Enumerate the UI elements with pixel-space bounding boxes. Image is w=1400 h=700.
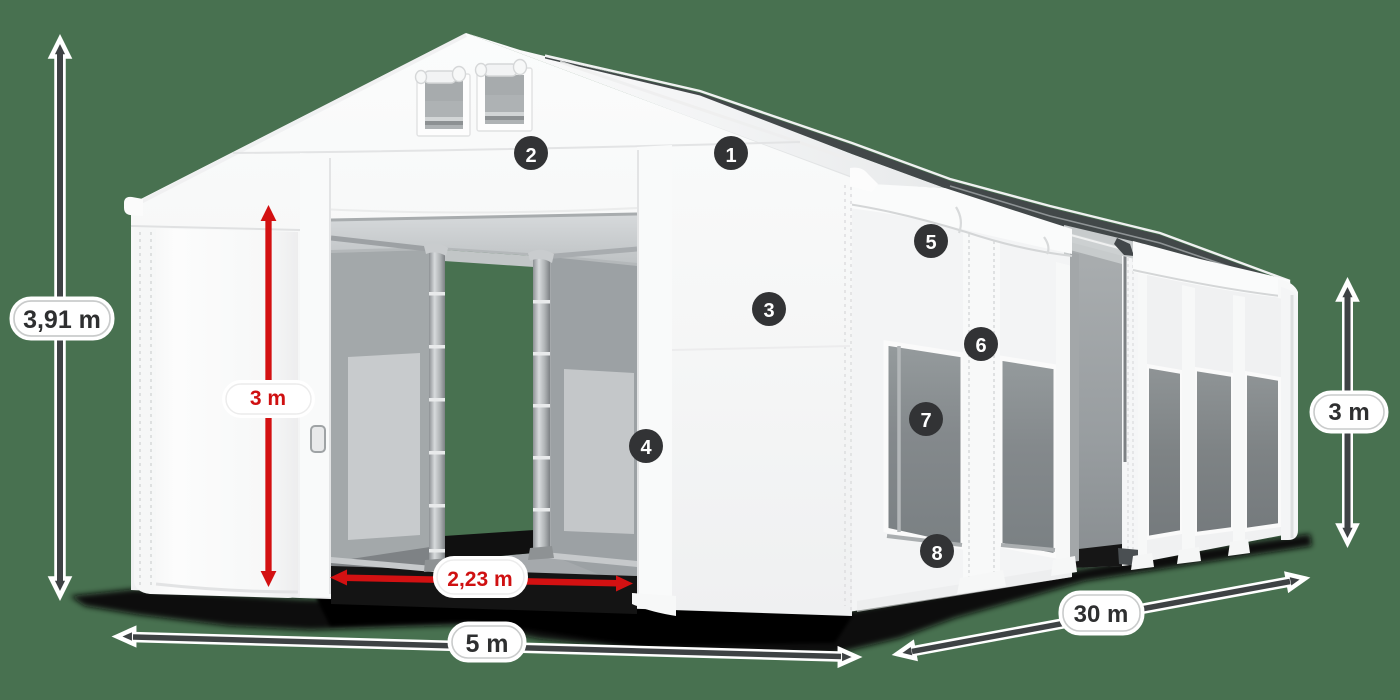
svg-text:3,91 m: 3,91 m [23,306,101,334]
svg-text:30 m: 30 m [1074,601,1129,628]
svg-text:1: 1 [725,145,736,167]
svg-text:3 m: 3 m [250,387,286,410]
svg-text:2,23 m: 2,23 m [447,568,512,591]
svg-text:3 m: 3 m [1328,399,1369,426]
svg-text:5: 5 [925,232,936,254]
svg-text:2: 2 [525,145,536,167]
svg-text:6: 6 [975,335,986,357]
svg-text:3: 3 [763,300,774,322]
svg-text:4: 4 [640,437,652,459]
svg-text:5 m: 5 m [465,630,508,658]
svg-text:8: 8 [931,543,942,565]
svg-text:7: 7 [920,410,931,432]
